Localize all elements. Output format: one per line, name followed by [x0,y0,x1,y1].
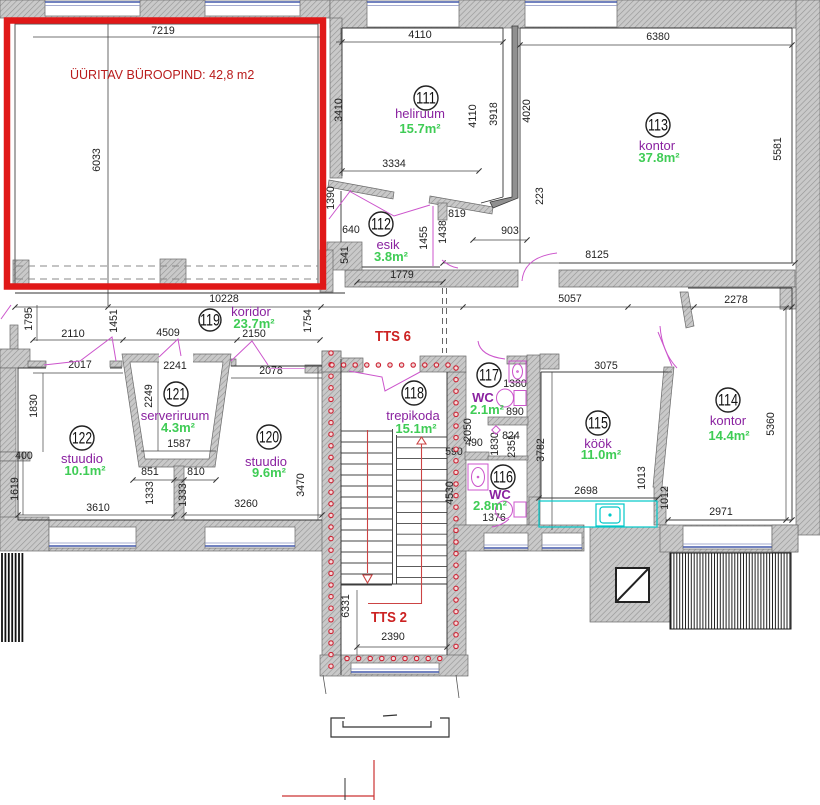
svg-text:1830: 1830 [28,394,40,418]
svg-text:23.7m²: 23.7m² [233,316,275,331]
svg-text:8125: 8125 [585,249,609,261]
svg-text:TTS 6: TTS 6 [375,328,411,345]
svg-text:113: 113 [648,117,668,135]
svg-text:3610: 3610 [86,502,110,514]
svg-text:117: 117 [479,367,499,385]
svg-text:116: 116 [493,469,513,487]
svg-text:4509: 4509 [156,327,180,339]
svg-text:2110: 2110 [61,328,85,340]
svg-text:903: 903 [501,225,519,237]
svg-text:6033: 6033 [91,148,103,172]
svg-text:3410: 3410 [333,98,345,122]
svg-text:640: 640 [342,224,360,236]
svg-text:4110: 4110 [467,104,479,128]
svg-text:1587: 1587 [167,438,191,450]
svg-text:4.3m²: 4.3m² [161,420,196,435]
svg-text:15.7m²: 15.7m² [399,121,441,136]
svg-text:3782: 3782 [535,438,547,462]
svg-text:121: 121 [166,386,186,404]
svg-text:2278: 2278 [724,294,748,306]
svg-text:TTS 2: TTS 2 [371,609,407,626]
svg-text:14.4m²: 14.4m² [708,428,750,443]
svg-text:1012: 1012 [659,486,671,510]
svg-text:1333: 1333 [144,481,156,505]
svg-text:6380: 6380 [646,31,670,43]
svg-text:1390: 1390 [325,186,337,210]
svg-text:1333: 1333 [177,483,189,507]
svg-text:541: 541 [339,246,351,264]
svg-text:1779: 1779 [390,269,414,281]
svg-text:111: 111 [416,90,436,108]
svg-text:400: 400 [15,450,33,462]
svg-text:1455: 1455 [418,226,430,250]
svg-text:2351: 2351 [506,434,518,458]
svg-text:223: 223 [534,187,546,205]
svg-text:819: 819 [448,208,466,220]
svg-text:11.0m²: 11.0m² [581,447,622,462]
svg-text:810: 810 [187,466,205,478]
svg-text:3334: 3334 [382,158,406,170]
svg-text:ÜÜRITAV BÜROOPIND: 42,8 m2: ÜÜRITAV BÜROOPIND: 42,8 m2 [70,68,254,82]
svg-text:1013: 1013 [636,466,648,490]
svg-text:4110: 4110 [408,29,432,41]
svg-text:2390: 2390 [381,631,405,643]
svg-text:10.1m²: 10.1m² [64,463,106,478]
svg-text:4020: 4020 [521,99,533,123]
svg-text:118: 118 [404,385,424,403]
svg-text:2050: 2050 [462,418,474,442]
svg-text:heliruum: heliruum [395,106,445,121]
svg-text:3.8m²: 3.8m² [374,249,409,264]
svg-text:2249: 2249 [143,384,155,408]
svg-text:120: 120 [259,429,279,447]
svg-text:1438: 1438 [437,220,449,244]
svg-text:7219: 7219 [151,25,175,37]
svg-text:kontor: kontor [710,413,747,428]
svg-text:2.8m²: 2.8m² [473,498,508,513]
svg-text:3470: 3470 [295,473,307,497]
svg-text:890: 890 [506,406,524,418]
svg-text:2698: 2698 [574,485,598,497]
svg-text:112: 112 [371,216,391,234]
svg-text:5057: 5057 [558,293,582,305]
svg-text:115: 115 [588,415,608,433]
svg-text:5360: 5360 [765,412,777,436]
svg-text:2078: 2078 [259,365,283,377]
svg-text:2241: 2241 [163,360,187,372]
svg-text:1795: 1795 [23,307,35,331]
svg-text:3075: 3075 [594,360,618,372]
svg-text:15.1m²: 15.1m² [395,421,437,436]
svg-text:1380: 1380 [503,378,527,390]
svg-text:2971: 2971 [709,506,733,518]
svg-text:2.1m²: 2.1m² [470,402,505,417]
svg-text:6331: 6331 [340,594,352,618]
svg-text:3260: 3260 [234,498,258,510]
svg-text:9.6m²: 9.6m² [252,465,287,480]
svg-text:37.8m²: 37.8m² [638,150,680,165]
svg-text:1830: 1830 [489,432,501,456]
svg-text:1451: 1451 [108,309,120,333]
svg-text:1754: 1754 [302,309,314,333]
svg-text:114: 114 [718,392,738,410]
svg-text:5581: 5581 [772,137,784,161]
svg-text:122: 122 [72,430,92,448]
svg-text:119: 119 [200,312,220,330]
svg-text:851: 851 [141,466,159,478]
svg-text:1376: 1376 [482,512,506,524]
svg-text:3918: 3918 [488,102,500,126]
svg-text:1619: 1619 [9,477,21,501]
